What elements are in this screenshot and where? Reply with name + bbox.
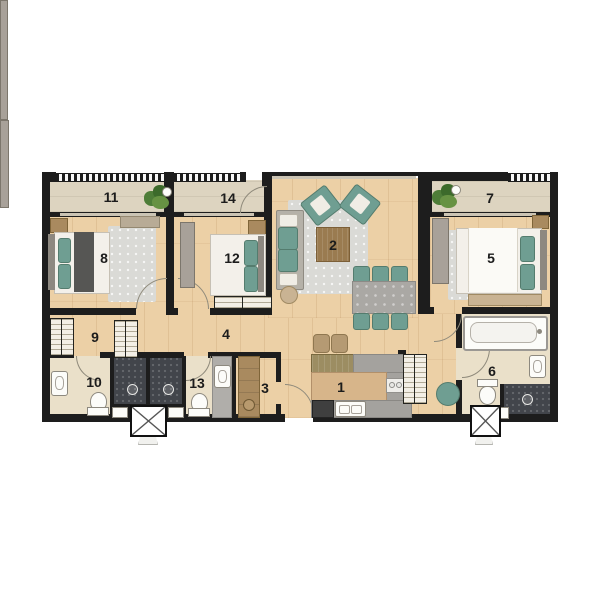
bar-stool-1: [313, 334, 330, 353]
room-label-4-hallway: 4: [222, 326, 230, 342]
bathroom-6-sink-basin: [533, 360, 542, 373]
wall-vent-box-right: [168, 407, 184, 418]
bathroom-6-sink: [529, 355, 546, 378]
room-3-sink-basin: [243, 399, 255, 411]
room-label-13-bathroom: 13: [189, 375, 205, 391]
bedroom-8-blanket: [74, 232, 94, 292]
corridor-wardrobe-right: [114, 320, 138, 358]
room-label-2-living: 2: [329, 237, 337, 253]
bathroom-13-sink-basin: [218, 370, 227, 383]
stove-burner-2: [396, 382, 402, 388]
bedroom-8-pillow-1: [58, 238, 71, 263]
wall-right: [550, 172, 558, 422]
window-bedroom-12: [184, 213, 254, 216]
bathroom-13-sink: [214, 365, 231, 388]
room-label-9-closet: 9: [91, 329, 99, 345]
plant-icon-balcony-7: [432, 183, 460, 211]
shower-stall-left: [114, 356, 146, 406]
living-window-glass: [272, 176, 416, 179]
wall-bedroom-12-bottom: [210, 308, 272, 315]
room-label-12-bedroom: 12: [224, 250, 240, 266]
room-label-5-bedroom: 5: [487, 250, 495, 266]
bathtub-basin: [470, 322, 537, 343]
bedroom-12-wardrobe: [180, 222, 195, 288]
room-label-10-bathroom: 10: [86, 374, 102, 390]
plant-pot: [451, 185, 461, 195]
room-label-6-bathroom: 6: [488, 363, 496, 379]
bathroom-6-toilet: [479, 386, 496, 405]
stove-burner-1: [389, 382, 395, 388]
plant-leaf: [152, 196, 169, 209]
wall-living-bedroom-5: [418, 216, 430, 314]
wall-bedroom-8-12: [166, 216, 174, 312]
kitchen-sink-basin-2: [351, 405, 362, 414]
plant-leaf: [440, 195, 457, 208]
shower-stall-right: [150, 356, 182, 406]
armchair-left-cushion: [309, 194, 331, 216]
plant-pot: [162, 187, 172, 197]
room-label-14-balcony: 14: [220, 190, 236, 206]
bedroom-5-pillow-1: [520, 236, 535, 262]
wall-post-bedroom-5-door: [430, 307, 434, 314]
bedroom-8-nightstand: [50, 218, 68, 233]
sliding-door-panel-bedroom-5: [0, 120, 9, 208]
corridor-wardrobe-left: [50, 318, 74, 356]
room-label-3-pantry: 3: [261, 380, 269, 396]
bathroom-13-toilet-tank: [188, 408, 210, 417]
wall-vent-box-left: [112, 407, 128, 418]
room-label-7-balcony: 7: [486, 190, 494, 206]
linen-cabinet: [403, 354, 427, 404]
bedroom-5-nightstand: [532, 215, 549, 229]
shower-head-right-icon: [163, 384, 174, 395]
wall-room-3-right-upper: [276, 352, 281, 382]
ac-ledge-right: [470, 405, 501, 437]
side-table: [280, 286, 298, 304]
ac-ledge-left: [130, 405, 167, 437]
bathroom-10-toilet-tank: [87, 407, 109, 416]
bathroom-10-sink: [51, 371, 68, 396]
sofa-pillow-top: [279, 214, 298, 227]
sofa-cushion-1: [278, 227, 298, 250]
bedroom-12-dresser: [214, 296, 272, 309]
bathtub: [463, 316, 548, 351]
balcony-7-railing: [508, 173, 550, 182]
sofa-cushion-2: [278, 249, 298, 272]
room-label-1-kitchen: 1: [337, 379, 345, 395]
window-bedroom-5: [444, 213, 536, 216]
sliding-door-panel-living: [0, 0, 8, 120]
bedroom-5-bench: [468, 294, 542, 306]
shower-head-left-icon: [127, 384, 138, 395]
x-mark-icon: [132, 407, 165, 435]
breakfast-bar: [311, 354, 355, 374]
bedroom-5-wardrobe: [432, 218, 449, 284]
wall-left: [42, 172, 50, 422]
stove-icon: [386, 378, 404, 393]
sofa-pillow-bottom: [279, 273, 298, 286]
shower-head-6-icon: [522, 394, 533, 405]
armchair-right-cushion: [349, 193, 371, 215]
wall-post-topleft: [42, 172, 56, 182]
bedroom-12-headboard: [258, 236, 264, 292]
x-mark-icon: [472, 407, 499, 435]
bathtub-faucet-icon: [537, 329, 542, 334]
dining-chair-6: [391, 313, 408, 330]
wall-bathroom-10-shower: [110, 356, 114, 408]
dining-table: [352, 281, 416, 314]
bedroom-12-nightstand: [248, 220, 266, 235]
balcony-14-railing: [174, 173, 240, 182]
bedroom-8-headboard: [48, 234, 55, 290]
bar-stool-2: [331, 334, 348, 353]
bedroom-5-headboard: [540, 230, 547, 290]
wall-bedroom-8-bottom: [48, 308, 136, 315]
wall-room-3-right-lower: [276, 404, 281, 416]
bedroom-12-pillow-2: [244, 266, 258, 292]
room-label-8-bedroom: 8: [100, 250, 108, 266]
floor-plan: 1 2 3 4 5 6 7 8 9 10 11 12 13 14: [0, 0, 600, 600]
bedroom-5-pillow-2: [520, 264, 535, 290]
dining-chair-4: [353, 313, 370, 330]
kitchen-island: [311, 372, 387, 402]
wall-post-bedroom-doors: [166, 308, 178, 315]
wall-post-balcony-14: [240, 172, 246, 182]
refrigerator: [312, 400, 334, 418]
wall-shower-divider: [146, 356, 150, 406]
plant-icon-balcony-11: [144, 184, 172, 212]
bathroom-10-sink-basin: [55, 376, 64, 390]
dining-chair-5: [372, 313, 389, 330]
room-label-11-balcony: 11: [104, 189, 119, 205]
kitchen-sink-basin-1: [339, 405, 350, 414]
bedroom-12-pillow-1: [244, 240, 258, 266]
wall-balcony-7-top: [430, 172, 508, 181]
laundry-basket: [436, 382, 460, 406]
bedroom-8-pillow-2: [58, 264, 71, 289]
bedroom-8-console: [120, 216, 160, 228]
kitchen-sink: [335, 401, 366, 417]
balcony-11-railing: [56, 173, 164, 182]
wall-bedroom-5-bottom: [462, 307, 550, 314]
